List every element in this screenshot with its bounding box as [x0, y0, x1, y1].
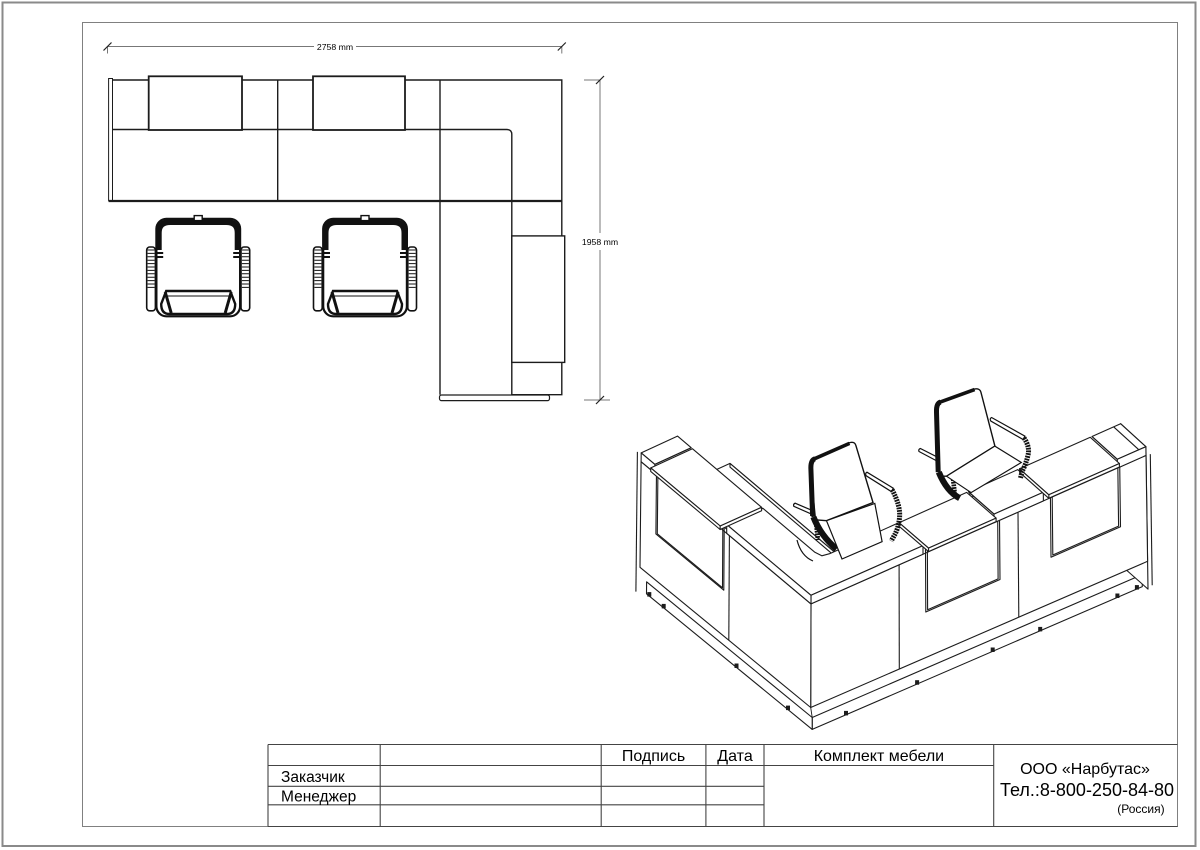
- svg-text:Дата: Дата: [717, 748, 753, 765]
- svg-text:ООО «Нарбутас»: ООО «Нарбутас»: [1020, 761, 1150, 778]
- svg-text:Комплект мебели: Комплект мебели: [814, 748, 944, 765]
- svg-text:(Россия): (Россия): [1117, 802, 1164, 816]
- svg-text:2758 mm: 2758 mm: [317, 42, 353, 52]
- svg-text:Заказчик: Заказчик: [281, 769, 345, 786]
- svg-text:1958 mm: 1958 mm: [582, 237, 618, 247]
- svg-text:Тел.:8-800-250-84-80: Тел.:8-800-250-84-80: [1000, 780, 1174, 800]
- svg-text:Подпись: Подпись: [622, 748, 685, 765]
- svg-text:Менеджер: Менеджер: [281, 789, 356, 806]
